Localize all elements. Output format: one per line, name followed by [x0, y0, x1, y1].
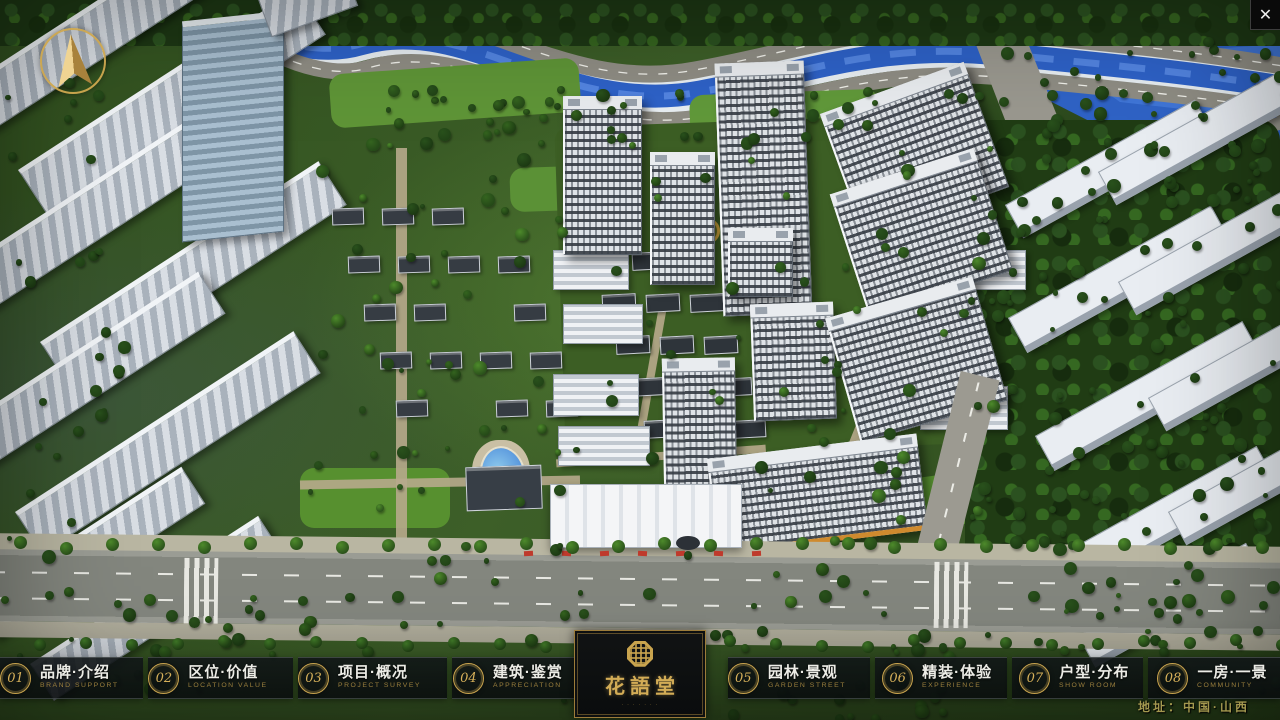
tree — [392, 591, 404, 603]
tree — [830, 536, 840, 546]
tree — [986, 497, 992, 503]
nav-number-badge: 02 — [148, 663, 179, 694]
tree — [728, 709, 739, 720]
tree — [1127, 50, 1133, 56]
tree — [1219, 69, 1226, 76]
courtyard-house — [732, 419, 767, 439]
tree — [1001, 47, 1014, 60]
tree — [646, 452, 659, 465]
presentation-window: ✕ 01 品牌·介绍BRAND SUPPORT 02 区位·价值LOCATION… — [0, 0, 1280, 720]
street-tree — [750, 537, 763, 550]
tree — [862, 120, 873, 131]
tree — [1142, 92, 1153, 103]
nav-subtitle: LOCATION VALUE — [188, 681, 268, 689]
tree — [1078, 644, 1085, 651]
tree — [1250, 73, 1260, 83]
midrise-building — [558, 426, 650, 466]
tree — [1151, 111, 1157, 117]
crosswalk — [184, 558, 219, 626]
tree — [1096, 612, 1103, 619]
tower-roof — [662, 357, 735, 372]
tree — [1101, 296, 1108, 303]
parked-car — [638, 551, 647, 556]
tree — [75, 257, 85, 267]
tree — [785, 596, 796, 607]
tree — [1082, 582, 1095, 595]
street-tree — [402, 640, 414, 652]
nav-subtitle: PROJECT SURVEY — [338, 681, 421, 689]
street-tree — [126, 639, 138, 651]
tree — [881, 243, 890, 252]
tree — [903, 171, 912, 180]
courtyard-house — [414, 303, 447, 321]
nav-number-badge: 05 — [728, 663, 759, 694]
tree — [407, 203, 419, 215]
project-logo[interactable]: 花語堂 · · · · · · · — [574, 630, 706, 718]
tree — [1057, 392, 1063, 398]
nav-subtitle: COMMUNITY — [1197, 681, 1253, 689]
tree — [1163, 292, 1174, 303]
tree — [486, 118, 494, 126]
tree — [872, 489, 886, 503]
tree — [1073, 447, 1085, 459]
courtyard-house — [646, 293, 681, 313]
glass-tower — [182, 11, 284, 243]
tree — [1217, 403, 1226, 412]
tree — [853, 306, 861, 314]
tree — [915, 705, 929, 719]
nav-item-room-view[interactable]: 08 一房·一景COMMUNITY — [1148, 657, 1280, 699]
nav-title: 精装·体验 — [922, 664, 1000, 681]
nav-title: 项目·概况 — [338, 664, 447, 681]
tree — [517, 153, 531, 167]
tree — [1182, 594, 1195, 607]
nav-item-location-value[interactable]: 02 区位·价值LOCATION VALUE — [148, 657, 293, 699]
tree — [1145, 629, 1151, 635]
tree — [64, 115, 72, 123]
parked-car — [600, 551, 609, 556]
nav-number: 03 — [305, 671, 322, 686]
tree — [441, 250, 447, 256]
tree — [842, 102, 854, 114]
residential-tower — [650, 152, 715, 285]
street-tree — [1184, 637, 1196, 649]
tree — [144, 594, 156, 606]
tree — [1145, 311, 1150, 316]
tree — [406, 253, 416, 263]
tree — [1024, 52, 1032, 60]
tree — [1039, 536, 1050, 547]
street-tree — [1164, 542, 1177, 555]
parked-car — [752, 551, 761, 556]
street-tree — [80, 637, 92, 649]
tree — [1116, 593, 1121, 598]
tree — [539, 114, 547, 122]
courtyard-house — [348, 255, 381, 273]
tree — [651, 177, 660, 186]
tree — [1094, 107, 1108, 121]
tree — [427, 556, 437, 566]
tree — [533, 376, 544, 387]
tree — [1220, 477, 1234, 491]
tree — [1254, 518, 1266, 530]
tree — [975, 92, 983, 100]
tree — [654, 194, 662, 202]
street-tree — [448, 637, 460, 649]
nav-number-badge: 03 — [298, 663, 329, 694]
midrise-building — [563, 304, 643, 344]
tree — [1156, 446, 1168, 458]
nav-number-badge: 01 — [0, 663, 31, 694]
tree — [1042, 154, 1052, 164]
nav-item-interior-experience[interactable]: 06 精装·体验EXPERIENCE — [875, 657, 1007, 699]
tree — [1047, 119, 1060, 132]
tree — [420, 204, 425, 209]
tree — [1119, 89, 1128, 98]
tree — [1060, 646, 1069, 655]
tree — [397, 446, 409, 458]
tree — [123, 608, 137, 622]
tree — [957, 93, 968, 104]
tree — [1274, 71, 1280, 82]
close-button[interactable]: ✕ — [1250, 0, 1280, 30]
tree — [847, 713, 854, 720]
tree — [959, 309, 968, 318]
tree — [972, 257, 986, 271]
nav-number: 02 — [156, 671, 173, 686]
tree — [389, 281, 403, 295]
tree — [985, 632, 991, 638]
tower-roof — [750, 302, 833, 319]
tree — [611, 266, 621, 276]
tree — [67, 518, 76, 527]
nav-item-brand-intro[interactable]: 01 品牌·介绍BRAND SUPPORT — [0, 657, 143, 699]
tree — [90, 385, 102, 397]
tree — [331, 314, 345, 328]
tree — [700, 173, 711, 184]
tree — [1200, 513, 1208, 521]
tree — [445, 361, 453, 369]
tree — [1193, 489, 1206, 502]
tree — [1071, 265, 1085, 279]
tree — [819, 437, 829, 447]
tree — [1047, 90, 1058, 101]
tree — [1180, 320, 1186, 326]
courtyard-house — [448, 255, 481, 273]
courtyard-house — [704, 335, 739, 355]
nav-subtitle: APPRECIATION — [493, 681, 562, 689]
tree — [417, 389, 425, 397]
tree — [1121, 513, 1126, 518]
tree — [1204, 626, 1217, 639]
nav-number: 08 — [1165, 671, 1182, 686]
parked-car — [714, 551, 723, 556]
tree — [1008, 385, 1018, 395]
tree — [73, 426, 84, 437]
tree — [1053, 290, 1058, 295]
courtyard-house — [690, 293, 725, 313]
nav-item-floorplan-distribution[interactable]: 07 户型·分布SHOW ROOM — [1012, 657, 1144, 699]
tree — [359, 194, 367, 202]
nav-title: 品牌·介绍 — [40, 664, 143, 681]
tree — [101, 327, 112, 338]
tree — [1226, 538, 1232, 544]
nav-number: 07 — [1027, 671, 1044, 686]
tree — [1052, 197, 1064, 209]
tree — [837, 575, 850, 588]
tree — [316, 165, 329, 178]
lawn — [300, 468, 450, 528]
tree — [748, 157, 755, 164]
tree — [1173, 614, 1183, 624]
tree — [245, 605, 254, 614]
street-tree — [980, 540, 993, 553]
tree — [493, 100, 504, 111]
tree — [25, 276, 37, 288]
tree — [1151, 141, 1159, 149]
tree — [606, 395, 618, 407]
tree — [1080, 98, 1092, 110]
tree — [710, 630, 721, 641]
tree — [232, 633, 245, 646]
tree — [775, 262, 786, 273]
tree — [988, 210, 998, 220]
tree — [299, 623, 311, 635]
tree — [525, 634, 538, 647]
street-tree — [816, 640, 828, 652]
tree — [1245, 222, 1255, 232]
tree — [939, 708, 947, 716]
street-tree — [264, 638, 276, 650]
tree — [897, 451, 910, 464]
tree — [810, 91, 819, 100]
street-tree — [954, 637, 966, 649]
tree — [1050, 327, 1055, 332]
tree — [675, 89, 684, 98]
nav-subtitle: BRAND SUPPORT — [40, 681, 119, 689]
nav-number: 05 — [735, 671, 752, 686]
tree — [1049, 412, 1062, 425]
tree — [8, 152, 17, 161]
tree — [940, 329, 948, 337]
courtyard-house — [660, 335, 695, 355]
street-tree — [1210, 538, 1223, 551]
street-tree — [1072, 539, 1085, 552]
tree — [370, 451, 378, 459]
compass-needle-icon — [54, 33, 92, 88]
tree — [166, 610, 178, 622]
tree — [978, 482, 991, 495]
tree — [992, 310, 1004, 322]
compass-icon — [40, 28, 106, 94]
tree — [418, 487, 424, 493]
street-tree — [1138, 635, 1150, 647]
tree — [555, 449, 561, 455]
tree — [484, 558, 489, 563]
street-tree — [862, 641, 874, 653]
street-tree — [290, 537, 303, 550]
tree — [620, 102, 627, 109]
tree — [64, 587, 74, 597]
street-tree — [842, 537, 855, 550]
tree — [1251, 139, 1265, 153]
tree — [308, 489, 313, 494]
tree — [386, 107, 392, 113]
tree — [189, 617, 200, 628]
tree — [1259, 601, 1268, 610]
nav-number: 04 — [460, 671, 477, 686]
street-tree — [1046, 639, 1058, 651]
tree — [1253, 626, 1263, 636]
tree — [537, 424, 546, 433]
nav-item-garden-landscape[interactable]: 05 园林·景观GARDEN STREET — [728, 657, 871, 699]
courtyard-house — [364, 303, 397, 321]
tree — [118, 341, 130, 353]
project-address: 地址：中国·山西 — [1138, 698, 1250, 715]
tree — [387, 143, 393, 149]
tree — [973, 506, 982, 515]
tree — [773, 571, 780, 578]
street-tree — [566, 541, 579, 554]
tree — [412, 450, 418, 456]
tree — [431, 279, 439, 287]
street-tree — [1000, 637, 1012, 649]
tree — [944, 89, 954, 99]
tree — [800, 277, 810, 287]
tree — [1106, 577, 1117, 588]
tree — [1095, 86, 1109, 100]
tree — [807, 109, 820, 122]
street-tree — [428, 538, 441, 551]
tree — [755, 461, 768, 474]
tree — [1238, 263, 1249, 274]
street-tree — [888, 541, 901, 554]
tree — [1263, 493, 1268, 498]
tree — [515, 497, 525, 507]
tree — [968, 297, 975, 304]
tree — [1238, 455, 1245, 462]
courtyard-house — [530, 351, 563, 369]
tree — [359, 406, 366, 413]
nav-item-project-overview[interactable]: 03 项目·概况PROJECT SURVEY — [298, 657, 447, 699]
nav-title: 户型·分布 — [1059, 664, 1136, 681]
street-tree — [356, 637, 368, 649]
masterplan-render — [0, 0, 1280, 720]
midrise-building — [553, 374, 639, 416]
tree — [479, 425, 490, 436]
tree — [1192, 241, 1202, 251]
tree — [298, 596, 308, 606]
tree — [835, 714, 844, 720]
tree — [1234, 54, 1240, 60]
tree — [804, 471, 816, 483]
nav-item-architecture-appreciation[interactable]: 04 建筑·鉴赏APPRECIATION — [452, 657, 584, 699]
courtyard-house — [396, 399, 429, 417]
street-tree — [172, 638, 184, 650]
tree — [736, 335, 741, 340]
street-tree — [60, 542, 73, 555]
tree — [573, 447, 580, 454]
nav-number-badge: 08 — [1157, 663, 1188, 694]
tree — [53, 453, 61, 461]
nav-subtitle: SHOW ROOM — [1059, 681, 1117, 689]
nav-number: 01 — [7, 671, 24, 686]
tree — [751, 603, 756, 608]
nav-title: 建筑·鉴赏 — [493, 664, 583, 681]
tree — [863, 87, 873, 97]
tree — [1221, 590, 1235, 604]
tree — [412, 90, 420, 98]
tree — [974, 402, 981, 409]
entrance-plaza — [676, 536, 700, 550]
tree — [512, 96, 525, 109]
tree — [1060, 531, 1066, 537]
tree — [579, 609, 589, 619]
street-tree — [310, 636, 322, 648]
tree — [977, 232, 990, 245]
tower-roof — [650, 152, 715, 166]
tree — [1151, 339, 1165, 353]
tree — [1122, 441, 1134, 453]
tree — [757, 626, 768, 637]
tree — [890, 479, 901, 490]
nav-number-badge: 06 — [882, 663, 913, 694]
tree — [783, 192, 790, 199]
tree — [501, 425, 507, 431]
street-tree — [796, 537, 809, 550]
tree — [1258, 467, 1265, 474]
street-tree — [724, 635, 736, 647]
street-tree — [770, 638, 782, 650]
tower-roof — [715, 61, 804, 78]
tree — [463, 290, 473, 300]
tree — [1203, 37, 1213, 47]
tree — [842, 263, 849, 270]
tree — [318, 350, 328, 360]
tree — [372, 294, 382, 304]
tree — [352, 244, 363, 255]
tree — [481, 193, 495, 207]
tree — [450, 369, 461, 380]
tree — [70, 99, 77, 106]
street-tree — [382, 539, 395, 552]
courtyard-house — [332, 207, 365, 225]
street-tree — [704, 539, 717, 552]
nav-number-badge: 04 — [453, 663, 484, 694]
tree — [560, 610, 570, 620]
tree — [1146, 439, 1156, 449]
tree — [896, 515, 906, 525]
tree — [1189, 51, 1195, 57]
tree — [1267, 581, 1280, 594]
pavilion — [465, 465, 542, 512]
tree — [1053, 543, 1067, 557]
street-tree — [336, 541, 349, 554]
street-tree — [218, 635, 230, 647]
tree — [770, 108, 779, 117]
tree — [864, 537, 877, 550]
parked-car — [524, 551, 533, 556]
logo-subtitle: · · · · · · · — [621, 703, 658, 706]
tree — [1049, 506, 1056, 513]
tree — [501, 207, 509, 215]
tree — [445, 446, 450, 451]
tree — [557, 543, 562, 548]
street-tree — [908, 634, 920, 646]
tree — [899, 150, 905, 156]
tree — [364, 344, 376, 356]
tree — [894, 649, 899, 654]
